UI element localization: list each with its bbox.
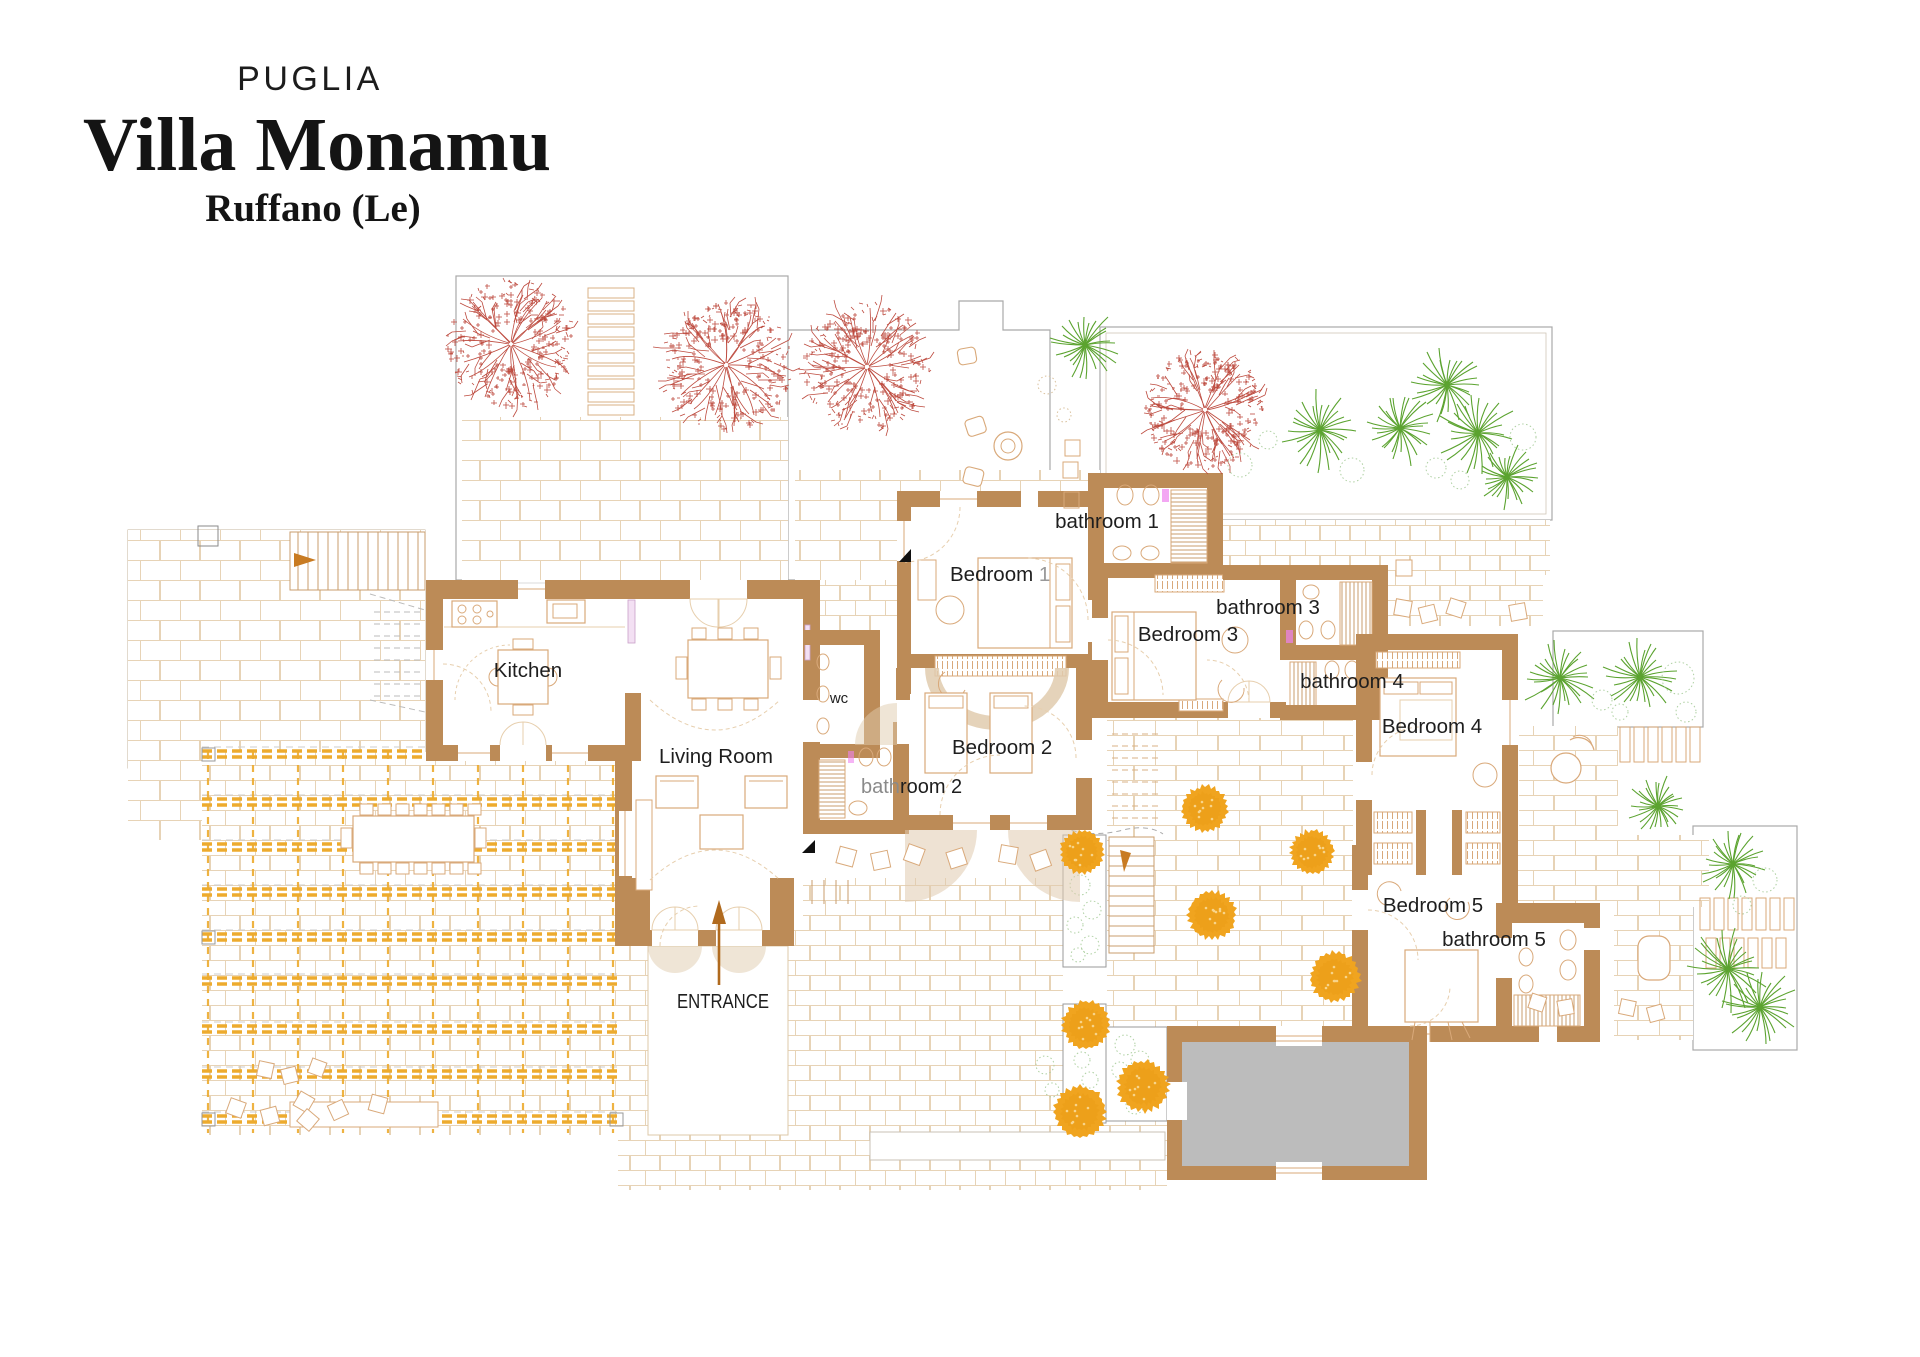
svg-text:Bedroom 2: Bedroom 2: [952, 736, 1052, 759]
svg-text:Kitchen: Kitchen: [494, 659, 562, 682]
svg-text:PUGLIA: PUGLIA: [237, 60, 383, 98]
svg-text:bathroom 1: bathroom 1: [1055, 510, 1159, 533]
svg-text:Living Room: Living Room: [659, 745, 773, 768]
svg-text:Villa Monamu: Villa Monamu: [83, 103, 551, 187]
svg-text:bathroom 3: bathroom 3: [1216, 596, 1320, 619]
svg-text:bathroom 5: bathroom 5: [1442, 928, 1546, 951]
svg-text:Bedroom 5: Bedroom 5: [1383, 894, 1483, 917]
svg-text:Ruffano (Le): Ruffano (Le): [205, 187, 421, 230]
svg-text:bathroom 2: bathroom 2: [861, 776, 962, 798]
svg-text:ENTRANCE: ENTRANCE: [677, 991, 769, 1013]
svg-text:Bedroom 4: Bedroom 4: [1382, 715, 1482, 738]
svg-text:Bedroom 1: Bedroom 1: [950, 563, 1050, 586]
svg-text:Bedroom 3: Bedroom 3: [1138, 623, 1238, 646]
svg-text:wc: wc: [829, 690, 849, 707]
svg-text:bathroom 4: bathroom 4: [1300, 670, 1404, 693]
